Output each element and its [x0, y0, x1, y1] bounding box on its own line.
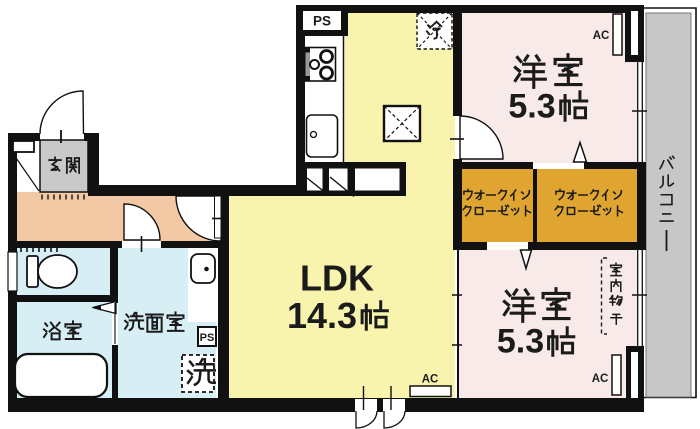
- svg-text:PS: PS: [200, 332, 215, 344]
- svg-text:PS: PS: [313, 14, 331, 29]
- svg-text:AC: AC: [422, 374, 439, 386]
- svg-text:AC: AC: [593, 30, 610, 42]
- svg-text:5.3: 5.3: [497, 323, 544, 361]
- svg-text:AC: AC: [592, 373, 609, 385]
- svg-text:LDK: LDK: [300, 258, 374, 299]
- svg-text:5.3: 5.3: [508, 88, 555, 126]
- svg-text:14.3: 14.3: [287, 295, 357, 336]
